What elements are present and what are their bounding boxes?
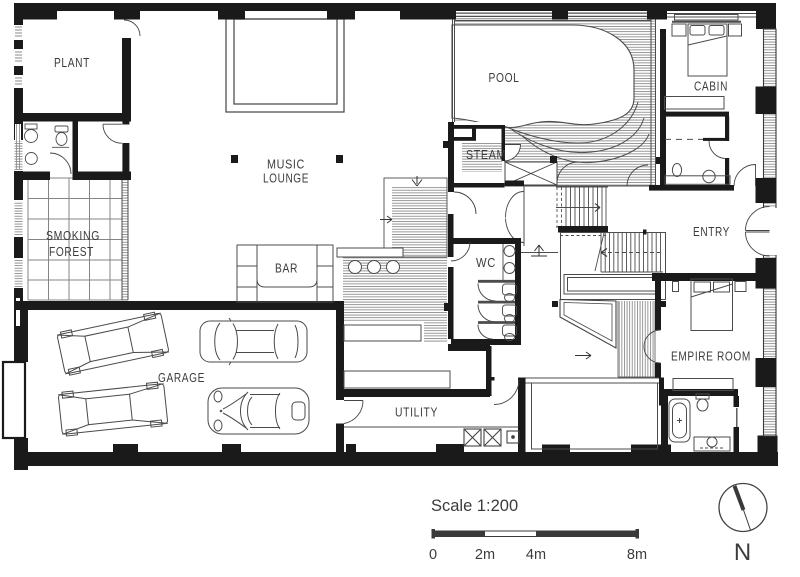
svg-text:4m: 4m [526, 547, 546, 563]
svg-text:2m: 2m [475, 547, 495, 563]
svg-text:GARAGE: GARAGE [158, 370, 205, 385]
svg-text:WC: WC [476, 255, 496, 270]
svg-text:MUSIC: MUSIC [267, 157, 305, 172]
svg-text:STEAM: STEAM [466, 147, 506, 162]
svg-text:SMOKING: SMOKING [46, 228, 100, 243]
svg-text:FOREST: FOREST [49, 244, 94, 259]
svg-text:LOUNGE: LOUNGE [263, 171, 309, 186]
svg-text:PLANT: PLANT [54, 55, 90, 70]
svg-text:0: 0 [429, 547, 437, 563]
svg-text:N: N [734, 539, 751, 566]
svg-text:8m: 8m [627, 547, 647, 563]
svg-text:POOL: POOL [489, 70, 520, 85]
svg-text:EMPIRE ROOM: EMPIRE ROOM [671, 349, 751, 364]
svg-text:ENTRY: ENTRY [693, 224, 730, 239]
svg-text:Scale 1:200: Scale 1:200 [431, 497, 518, 515]
svg-text:UTILITY: UTILITY [395, 405, 438, 420]
svg-text:BAR: BAR [275, 261, 298, 276]
svg-text:CABIN: CABIN [694, 79, 728, 94]
